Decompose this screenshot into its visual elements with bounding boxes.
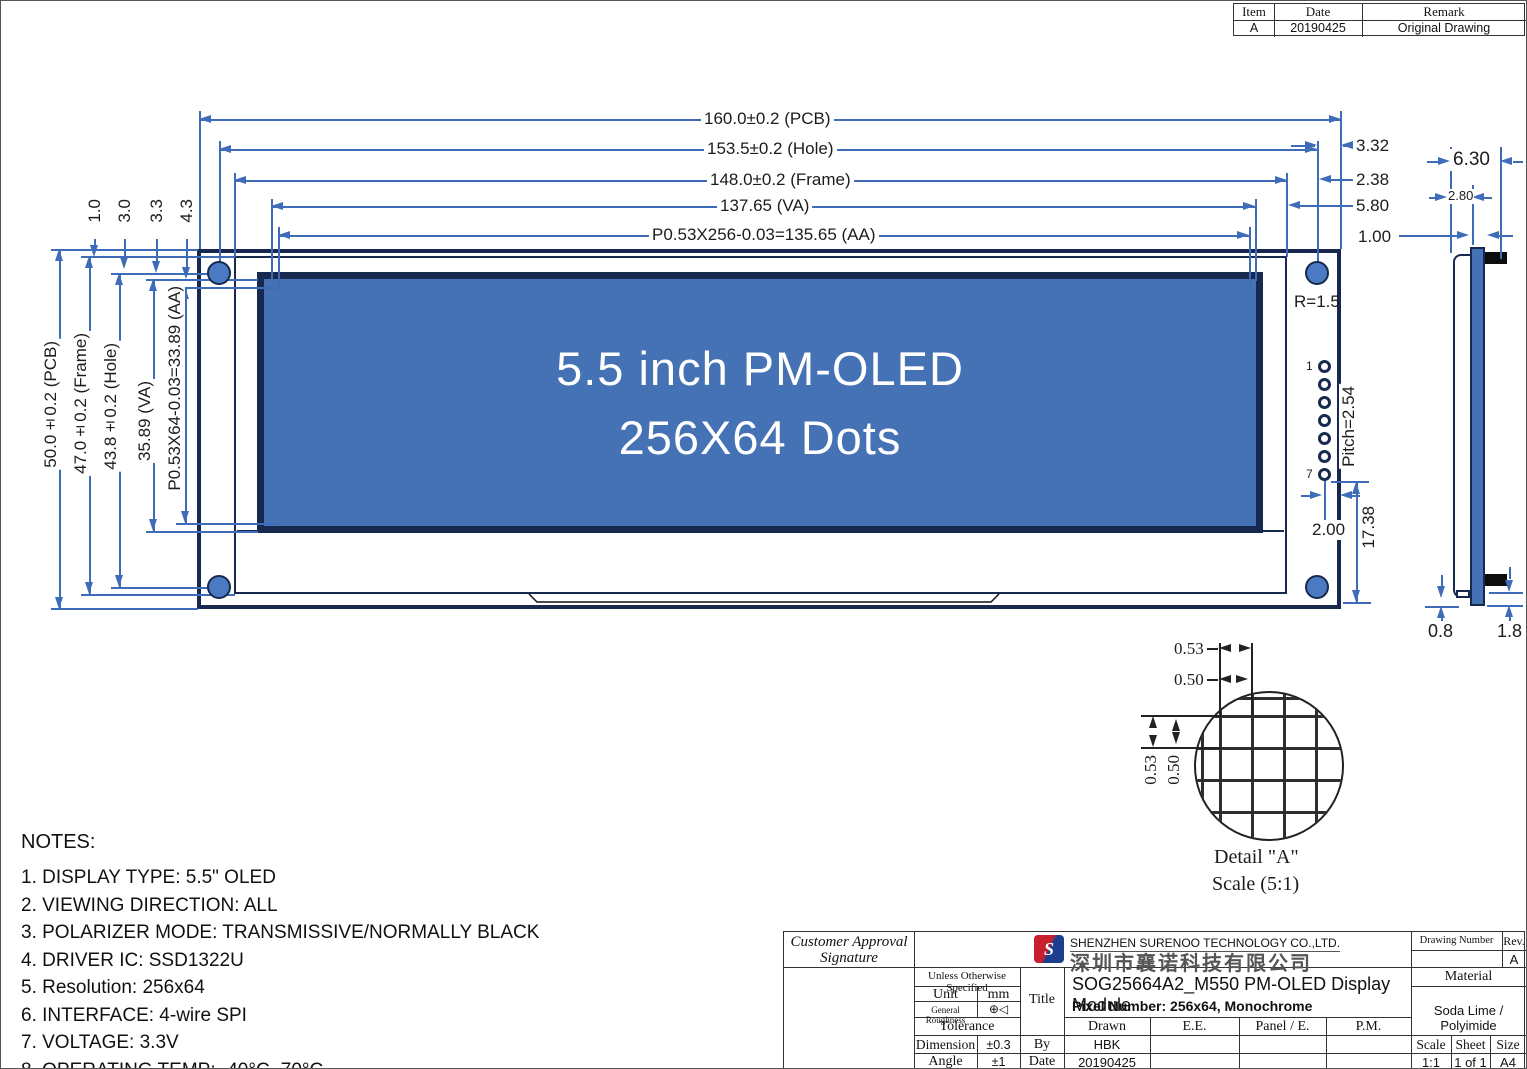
extension-line [176,523,279,525]
dim-line [1300,205,1355,207]
note-item-4: 4. DRIVER IC: SSD1322U [21,949,621,972]
drawn-date-value: 20190425 [1064,1055,1150,1069]
dim-line [1513,161,1523,163]
dim-pcb-height: 50.0±0.2 (PCB) [41,339,61,470]
dim-arrow [1310,491,1322,499]
detail-a-circle [1194,691,1344,841]
dim-arrow [1219,644,1231,652]
dim-arrow [1505,580,1513,592]
dim-arrow [55,597,63,609]
corner-radius-label: R=1.5 [1291,292,1343,312]
dim-arrow [1149,716,1157,728]
dim-arrow [1500,157,1512,165]
rev-col-remark: Remark [1362,4,1526,20]
dim-line [156,239,158,263]
extension-line [1251,643,1253,715]
dim-va-height: 35.89 (VA) [135,379,155,463]
extension-line [1489,592,1523,594]
dim-arrow [1239,644,1251,652]
title-label: Title [1020,992,1064,1008]
title-block: Customer Approval Signature S SHENZHEN S… [783,931,1525,1069]
dim-arrow [85,256,93,268]
dim-arrow [85,582,93,594]
rev-item-value: A [1234,21,1274,35]
extension-line [111,273,211,275]
pin-hole-1 [1318,360,1331,373]
dim-arrow [278,231,290,239]
dim-arrow [55,249,63,261]
dim-line [185,287,187,523]
panel-e-label: Panel / E. [1239,1019,1326,1035]
dim-arrow [1237,231,1249,239]
dim-arrow [1487,231,1499,239]
pitch-label: Pitch=2.54 [1339,384,1359,469]
notes-heading: NOTES: [21,831,621,854]
extension-line [1317,141,1319,265]
rev-value: A [1502,952,1526,967]
extension-line [1331,481,1369,483]
pixel-number: Pixel Number: 256x64, Monochrome [1072,998,1408,1014]
notes-block: NOTES: 1. DISPLAY TYPE: 5.5" OLED 2. VIE… [21,831,621,1069]
pin-number-first: 1 [1306,359,1313,373]
pin-hole-6 [1318,450,1331,463]
dim-line [1331,179,1355,181]
dim-arrow [1149,735,1157,747]
mounting-hole-top-right [1305,261,1329,285]
dim-arrow [120,257,128,269]
note-item-1: 1. DISPLAY TYPE: 5.5" OLED [21,866,621,889]
dim-arrow [1219,675,1231,683]
dim-arrow [1352,590,1360,602]
scale-value: 1:1 [1411,1055,1451,1069]
fpc-outline [527,593,1003,605]
material-label: Material [1411,969,1526,985]
dim-frame-width: 148.0±0.2 (Frame) [707,170,854,190]
dim-line [186,239,188,269]
detail-a-scale: Scale (5:1) [1209,873,1302,896]
date-label: Date [1020,1054,1064,1069]
dim-arrow [1340,491,1352,499]
angle-tolerance-value: ±1 [977,1055,1020,1069]
extension-line [146,531,258,533]
dim-line [1206,648,1218,650]
detail-dim-active-h: 0.50 [1171,670,1207,690]
side-width-label: 6.30 [1450,149,1493,171]
pin-hole-4 [1318,414,1331,427]
rev-col-item: Item [1234,4,1274,20]
dim-arrow [219,145,231,153]
dim-arrow [1329,115,1341,123]
extension-line [219,141,221,265]
pin-hole-2 [1318,378,1331,391]
dim-arrow [1341,141,1353,149]
extension-line [1343,602,1371,604]
dim-arrow [1172,719,1180,731]
display-shelf-line [237,530,1284,532]
drawn-label: Drawn [1064,1019,1150,1035]
size-label: Size [1490,1037,1526,1053]
sheet-value: 1 of 1 [1451,1055,1490,1069]
screen-text-line2: 256X64 Dots [619,410,902,465]
angle-label: Angle [914,1054,977,1069]
dim-pin-offset: 2.00 [1309,520,1348,540]
dim-arrow [1305,141,1317,149]
dim-arrow [1172,732,1180,744]
dim-frame-height: 47.0±0.2 (Frame) [71,331,91,476]
side-glass-offset-label: 2.80 [1447,189,1474,204]
extension-line [1255,199,1257,281]
sheet-label: Sheet [1451,1037,1490,1053]
dim-arrow [1288,201,1300,209]
unit-value: mm [977,987,1020,1003]
side-top-tab [1485,252,1507,264]
dimension-tolerance-value: ±0.3 [977,1038,1020,1052]
dim-arrow [1437,586,1445,598]
rev-date-value: 20190425 [1274,21,1362,35]
company-logo: S [1034,935,1064,963]
rev-remark-value: Original Drawing [1362,21,1526,35]
screen-text-line1: 5.5 inch PM-OLED [556,341,964,396]
dim-3-0: 3.0 [115,197,135,225]
extension-line [199,111,201,249]
dim-5-80: 5.80 [1353,196,1392,216]
extension-line [111,587,211,589]
side-glass [1470,247,1485,606]
pin-hole-3 [1318,396,1331,409]
note-item-5: 5. Resolution: 256x64 [21,976,621,999]
note-item-7: 7. VOLTAGE: 3.3V [21,1031,621,1054]
dim-pin-bottom: 17.38 [1359,504,1379,551]
size-value: A4 [1490,1055,1526,1069]
dim-aa-width: P0.53X256-0.03=135.65 (AA) [649,225,879,245]
dim-line [1509,567,1511,579]
customer-approval-line1: Customer Approval [784,934,914,951]
side-foot [1456,590,1470,598]
dim-arrow [234,176,246,184]
dim-arrow [149,279,157,291]
rev-col-date: Date [1274,4,1362,20]
dimension-label: Dimension [914,1037,977,1053]
oled-active-area: 5.5 inch PM-OLED 256X64 Dots [257,272,1263,533]
dim-arrow [1236,675,1248,683]
dim-aa-height: P0.53X64-0.03=33.89 (AA) [165,284,185,493]
extension-line [1249,227,1251,287]
dim-2-38: 2.38 [1353,170,1392,190]
detail-dim-active-v: 0.50 [1164,753,1184,787]
dim-arrow [149,519,157,531]
company-name-cn: 深圳市襄诺科技有限公司 [1070,947,1312,976]
note-item-3: 3. POLARIZER MODE: TRANSMISSIVE/NORMALLY… [21,921,621,944]
detail-dim-pitch-v: 0.53 [1141,753,1161,787]
dim-arrow [1243,202,1255,210]
dim-line [1206,679,1218,681]
extension-line [271,199,273,281]
scale-label: Scale [1411,1037,1451,1053]
rev-label: Rev. [1502,934,1526,949]
dim-1-00: 1.00 [1355,227,1394,247]
dim-line [1356,482,1358,602]
dim-arrow [182,267,190,279]
extension-line [176,287,279,289]
dim-arrow [1435,193,1447,201]
dim-1-0: 1.0 [85,197,105,225]
extension-line [234,173,236,257]
dim-pcb-width: 160.0±0.2 (PCB) [701,109,834,129]
dim-arrow [271,202,283,210]
dim-hole-height: 43.8±0.2 (Hole) [101,341,121,472]
drawn-value: HBK [1064,1037,1150,1052]
dim-arrow [181,511,189,523]
extension-line [51,249,198,251]
dim-va-width: 137.65 (VA) [717,196,812,216]
extension-line [51,608,198,610]
dim-arrow [115,273,123,285]
dim-line [1399,235,1457,237]
note-item-8: 8. OPERATING TEMP: -40°C~70°C [21,1059,621,1069]
mounting-hole-bottom-left [207,575,231,599]
tolerance-label: Tolerance [914,1019,1020,1035]
drawing-sheet: 5.5 inch PM-OLED 256X64 Dots 1 7 R=1.5 P… [0,0,1527,1069]
dim-arrow [1457,231,1469,239]
dim-arrow [1505,605,1513,617]
material-value: Soda Lime / Polyimide [1411,1003,1526,1033]
dim-arrow [199,115,211,123]
detail-a-caption: Detail "A" [1211,846,1302,869]
dim-arrow [115,575,123,587]
dim-arrow [1275,176,1287,184]
dim-hole-width: 153.5±0.2 (Hole) [704,139,837,159]
roughness-symbol-icon: ⊕◁ [977,1002,1020,1017]
note-item-2: 2. VIEWING DIRECTION: ALL [21,894,621,917]
dim-3-3: 3.3 [147,197,167,225]
extension-line [146,279,258,281]
side-bottom-left-label: 0.8 [1425,621,1456,642]
side-bottom-tab [1485,574,1507,586]
extension-line [1141,747,1221,749]
pin-hole-7 [1318,468,1331,481]
mounting-hole-bottom-right [1305,575,1329,599]
dim-3-32: 3.32 [1353,136,1392,156]
note-item-6: 6. INTERFACE: 4-wire SPI [21,1004,621,1027]
pin-number-last: 7 [1306,467,1313,481]
unit-label: Unit [914,987,977,1003]
pin-hole-5 [1318,432,1331,445]
mounting-hole-top-left [207,261,231,285]
revision-table: Item Date Remark A 20190425 Original Dra… [1233,3,1525,36]
dim-arrow [1319,175,1331,183]
ee-label: E.E. [1150,1019,1239,1035]
extension-line [81,256,235,258]
dim-arrow [1438,157,1450,165]
dim-line [1484,197,1492,199]
dim-arrow [152,261,160,273]
dim-4-3: 4.3 [177,197,197,225]
side-bottom-right-label: 1.8 [1494,621,1525,642]
dim-arrow [1352,482,1360,494]
logo-letter: S [1044,939,1054,960]
drawing-number-label: Drawing Number [1411,935,1502,946]
detail-dim-pitch-h: 0.53 [1171,639,1207,659]
pm-label: P.M. [1326,1019,1411,1035]
by-label: By [1020,1037,1064,1053]
extension-line [1324,480,1326,520]
customer-approval-line2: Signature [784,950,914,967]
extension-line [1286,173,1288,257]
dim-arrow [1437,606,1445,618]
